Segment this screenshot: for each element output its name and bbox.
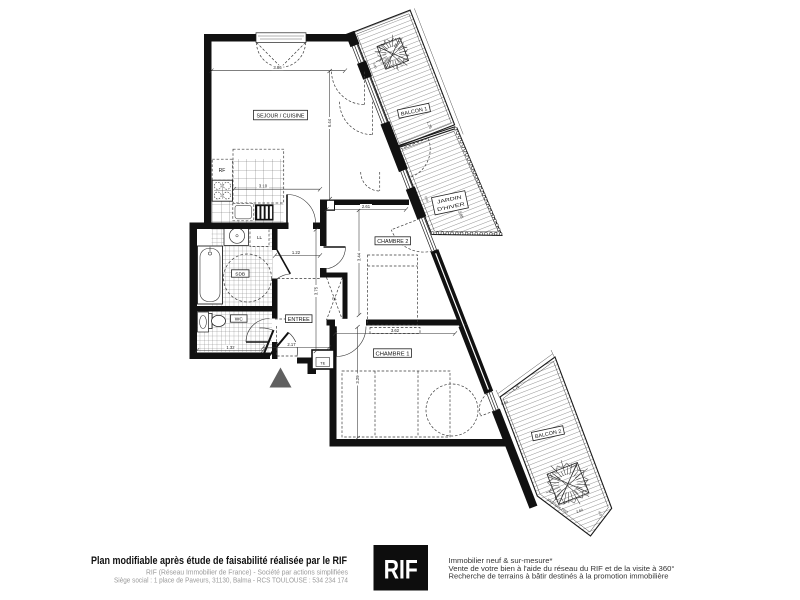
svg-text:ENTREE: ENTREE bbox=[288, 317, 311, 323]
svg-text:Immobilier neuf & sur-mesure*: Immobilier neuf & sur-mesure* bbox=[449, 558, 553, 565]
svg-text:1.32: 1.32 bbox=[226, 345, 235, 350]
svg-text:CHAMBRE 1: CHAMBRE 1 bbox=[376, 351, 410, 357]
svg-text:3.44: 3.44 bbox=[357, 252, 362, 261]
svg-text:3.29: 3.29 bbox=[355, 375, 360, 384]
svg-text:RIF: RIF bbox=[384, 555, 418, 585]
svg-text:Vente de votre bien à l'aide d: Vente de votre bien à l'aide du réseau d… bbox=[449, 565, 675, 573]
svg-text:3.75: 3.75 bbox=[314, 286, 319, 295]
svg-text:PL: PL bbox=[332, 297, 337, 301]
svg-text:3.86: 3.86 bbox=[273, 65, 282, 70]
svg-text:SDB: SDB bbox=[235, 272, 245, 278]
svg-text:Recherche de terrains à bâtir: Recherche de terrains à bâtir destinés à… bbox=[449, 573, 669, 580]
svg-text:Siège social : 1 place de Pave: Siège social : 1 place de Paveurs, 31130… bbox=[114, 578, 348, 585]
svg-text:SEJOUR / CUISINE: SEJOUR / CUISINE bbox=[257, 114, 305, 120]
svg-text:6.44: 6.44 bbox=[327, 118, 332, 127]
svg-text:1.22: 1.22 bbox=[292, 250, 301, 255]
svg-text:WC: WC bbox=[235, 317, 244, 323]
svg-text:TE: TE bbox=[320, 361, 325, 366]
svg-text:RIF (Réseau Immobilier de Fran: RIF (Réseau Immobilier de France) - Soci… bbox=[146, 570, 348, 577]
svg-text:Plan modifiable après étude de: Plan modifiable après étude de faisabili… bbox=[91, 555, 347, 567]
svg-text:RF: RF bbox=[219, 168, 226, 174]
svg-text:2.61: 2.61 bbox=[362, 204, 371, 209]
svg-text:3.10: 3.10 bbox=[259, 184, 268, 189]
svg-text:3.62: 3.62 bbox=[391, 328, 400, 333]
svg-text:2.17: 2.17 bbox=[287, 342, 296, 347]
svg-text:LL: LL bbox=[257, 235, 263, 240]
svg-text:CHAMBRE 2: CHAMBRE 2 bbox=[377, 239, 408, 245]
